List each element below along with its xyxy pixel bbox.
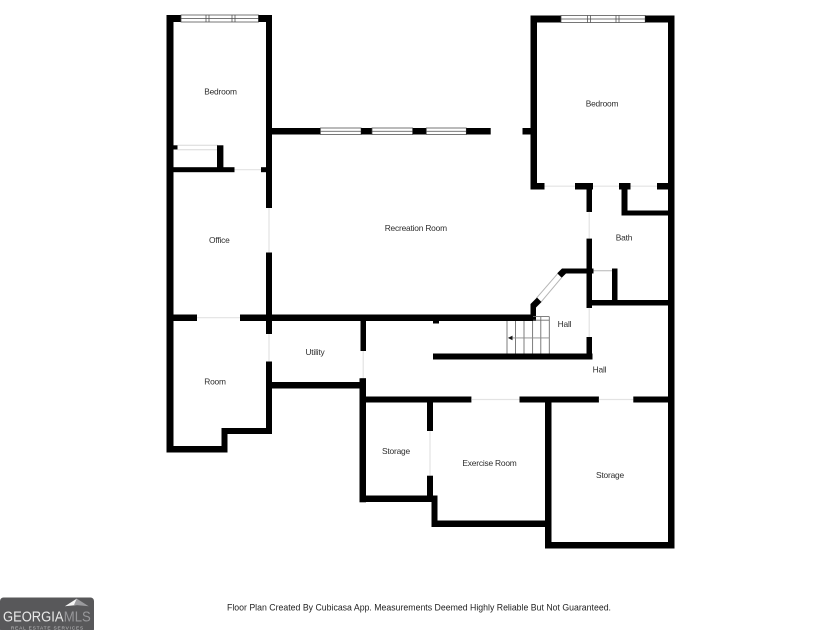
svg-text:Bedroom: Bedroom <box>586 99 619 109</box>
svg-text:Room: Room <box>204 376 226 386</box>
svg-text:Hall: Hall <box>558 319 572 329</box>
svg-text:GEORGIA: GEORGIA <box>3 609 64 625</box>
svg-text:Storage: Storage <box>596 470 624 480</box>
svg-text:REAL ESTATE SERVICES: REAL ESTATE SERVICES <box>11 626 84 630</box>
svg-text:Utility: Utility <box>305 347 325 357</box>
svg-text:Bath: Bath <box>616 232 633 242</box>
svg-text:Hall: Hall <box>593 364 607 374</box>
svg-text:Floor Plan Created By Cubicasa: Floor Plan Created By Cubicasa App. Meas… <box>227 603 611 613</box>
svg-text:Bedroom: Bedroom <box>204 86 237 96</box>
svg-text:Exercise Room: Exercise Room <box>462 458 516 468</box>
svg-text:MLS: MLS <box>64 609 91 625</box>
svg-text:Storage: Storage <box>382 446 410 456</box>
svg-text:Office: Office <box>209 235 230 245</box>
svg-text:Recreation Room: Recreation Room <box>385 223 447 233</box>
